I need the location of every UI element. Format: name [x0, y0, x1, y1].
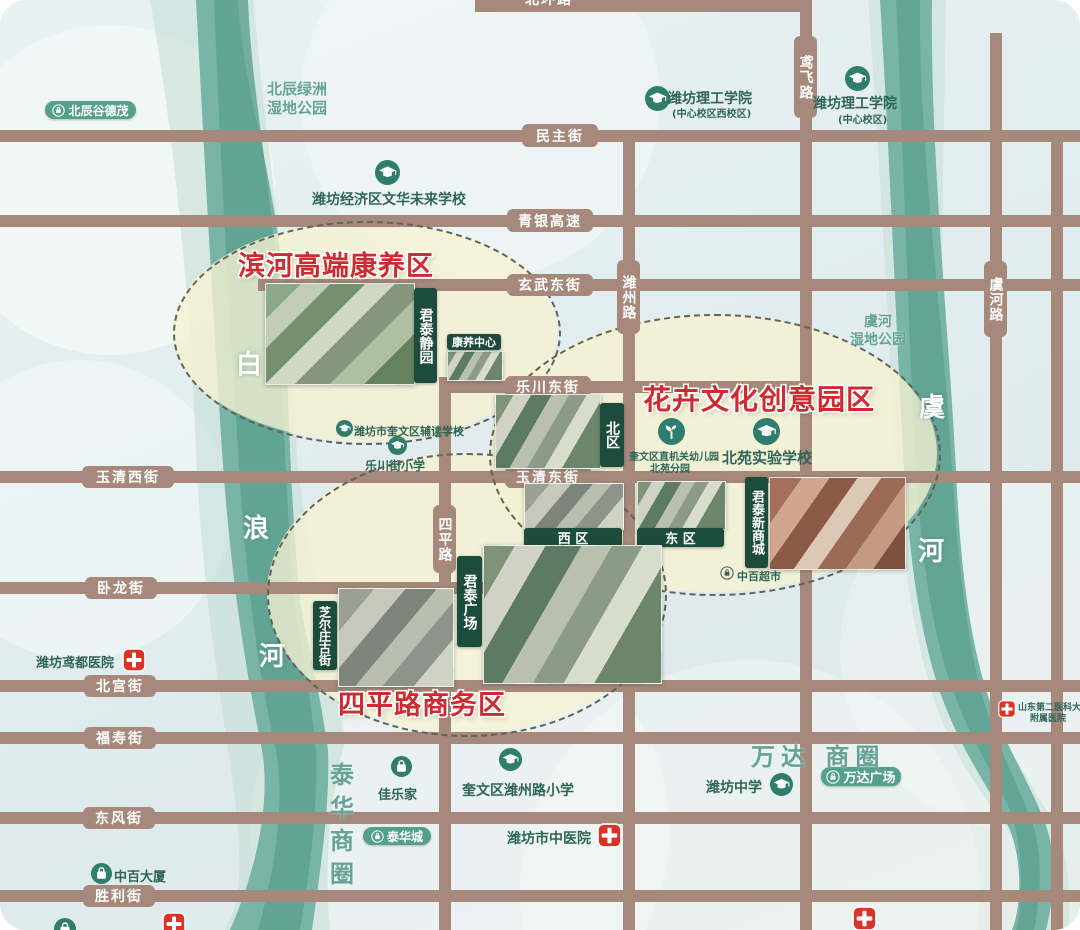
river-name-char: 虞	[919, 387, 945, 424]
river-name-char: 河	[259, 636, 285, 673]
park-name: 虞河湿地公园	[845, 314, 911, 349]
park-name-line1: 虞河	[845, 314, 911, 332]
zone-title: 花卉文化创意园区	[643, 378, 875, 418]
district-wanda-label: 万达 商圈	[751, 737, 885, 772]
river-name-char: 浪	[243, 508, 269, 545]
park-name-line2: 湿地公园	[845, 332, 911, 350]
district-taihua-char: 泰	[330, 755, 354, 790]
zone-title: 四平路商务区	[338, 683, 506, 722]
river-name-char: 白	[236, 344, 262, 381]
river-name-char: 河	[918, 531, 944, 568]
zone-title: 滨河高端康养区	[238, 244, 434, 283]
park-name-line1: 北辰绿洲	[262, 80, 332, 99]
park-name: 北辰绿洲湿地公园	[262, 80, 332, 118]
district-taihua-char: 商	[330, 821, 354, 856]
district-taihua-char: 圈	[330, 854, 354, 889]
map-canvas: 北环路民主街青银高速玄武东街乐川东街玉清西街玉清东街卧龙街北宫街福寿街东风街胜利…	[0, 0, 1080, 930]
park-name-line2: 湿地公园	[262, 99, 332, 118]
location-map: 北环路民主街青银高速玄武东街乐川东街玉清西街玉清东街卧龙街北宫街福寿街东风街胜利…	[0, 0, 1080, 930]
district-taihua-char: 华	[330, 788, 354, 823]
text-layer: 滨河高端康养区花卉文化创意园区四平路商务区北辰绿洲湿地公园虞河湿地公园万达 商圈…	[0, 0, 1080, 930]
